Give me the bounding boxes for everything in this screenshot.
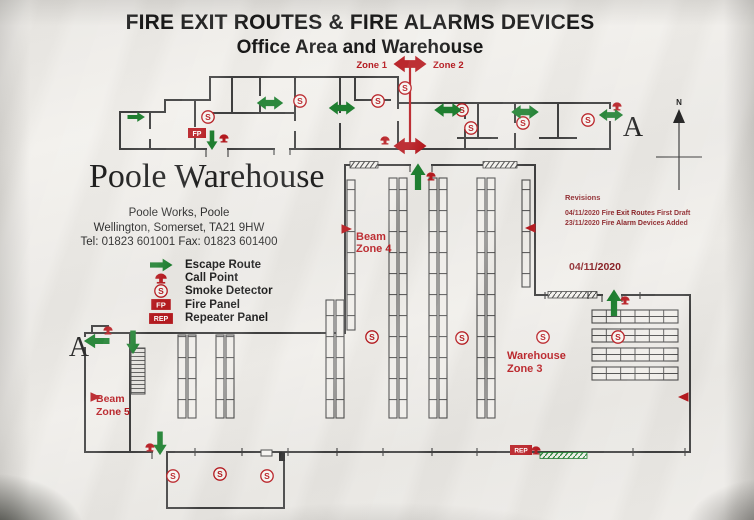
smoke-detector-icon (456, 332, 468, 344)
call-point-icon (612, 102, 621, 110)
loading-door (483, 162, 517, 169)
zone1-label: Zone 1 (356, 60, 387, 71)
smoke-detector-icon (167, 470, 179, 482)
revision-entry: 23/11/2020 Fire Alarm Devices Added (565, 219, 690, 229)
smoke-detector-icon (612, 331, 624, 343)
smoke-detector-icon (582, 114, 594, 126)
address-line: Poole Works, Poole (53, 206, 305, 221)
legend-row: Escape Route (144, 258, 273, 271)
stairs (131, 348, 145, 394)
address-line: Tel: 01823 601001 Fax: 01823 601400 (53, 235, 305, 250)
smoke-detector-icon (372, 95, 384, 107)
legend-row: Fire Panel (144, 298, 273, 311)
smoke-detector-icon (465, 122, 477, 134)
title-block: FIRE EXIT ROUTES & FIRE ALARMS DEVICES O… (60, 11, 660, 59)
page-title: FIRE EXIT ROUTES & FIRE ALARMS DEVICES (60, 11, 660, 35)
repeater-panel-icon (144, 312, 178, 325)
zone3-racks (592, 310, 678, 380)
revision-date: 04/11/2020 (569, 261, 621, 273)
warehouse-zone3-label: Zone 3 (507, 363, 542, 375)
fire-panel-icon (188, 128, 206, 138)
smoke-detector-icon (294, 95, 306, 107)
zone2-label: Zone 2 (433, 60, 464, 71)
page-subtitle: Office Area and Warehouse (60, 37, 660, 59)
legend-label: Repeater Panel (185, 312, 268, 324)
smoke-detector-icon (261, 470, 273, 482)
escape-route-arrow-icon (153, 432, 166, 456)
escape-route-arrow-icon (128, 112, 145, 122)
call-point-icon (426, 172, 435, 180)
escape-route-arrow-icon (144, 258, 178, 272)
warehouse-zone3-label: Warehouse (507, 350, 566, 362)
building-name: Poole Warehouse (89, 158, 325, 196)
legend-label: Smoke Detector (185, 285, 273, 297)
loading-door (350, 162, 378, 169)
legend-label: Fire Panel (185, 299, 240, 311)
north-arrow-icon (673, 109, 685, 123)
escape-route-arrow-icon (329, 101, 355, 114)
legend-row: Smoke Detector (144, 285, 273, 298)
beam-zone4-label: Zone 4 (356, 243, 392, 255)
smoke-detector-icon (517, 117, 529, 129)
call-point-icon (620, 296, 629, 304)
legend-row: Repeater Panel (144, 312, 273, 325)
section-marker-left: A (69, 332, 90, 363)
fire-panel-icon (144, 298, 178, 311)
escape-route-arrow-icon (599, 109, 623, 121)
building-address: Poole Works, Poole Wellington, Somerset,… (53, 206, 305, 250)
smoke-detector-icon (399, 82, 411, 94)
call-point-icon (380, 136, 389, 144)
office-area-walls (120, 77, 610, 157)
section-marker-right: A (623, 112, 644, 143)
address-line: Wellington, Somerset, TA21 9HW (53, 221, 305, 236)
smoke-detector-icon (144, 283, 178, 299)
smoke-detector-icon (202, 111, 214, 123)
call-point-icon (103, 326, 112, 334)
beam-detector-icon (678, 392, 689, 402)
roller-door (540, 453, 587, 459)
escape-route-arrow-icon (410, 163, 425, 190)
call-point-icon (531, 446, 540, 454)
smoke-detector-icon (214, 468, 226, 480)
north-label: N (676, 98, 682, 107)
loading-door (548, 292, 597, 299)
beam-zone5-label: Beam (96, 393, 125, 405)
revisions-block: Revisions 04/11/2020 Fire Exit Routes Fi… (565, 193, 690, 228)
beam-zone4-label: Beam (356, 231, 386, 243)
revisions-title: Revisions (565, 193, 690, 202)
escape-route-arrow-icon (206, 131, 217, 150)
revision-entry: 04/11/2020 Fire Exit Routes First Draft (565, 209, 690, 219)
north-compass: N (656, 98, 702, 190)
call-point-icon (145, 443, 154, 451)
call-point-icon (219, 134, 228, 142)
legend: Escape Route Call Point Smoke Detector F… (144, 258, 273, 325)
smoke-detector-icon (366, 331, 378, 343)
legend-label: Call Point (185, 272, 238, 284)
floor-plan: S FP REP (0, 0, 754, 520)
floor-plan-photo: S FP REP (0, 0, 754, 520)
beam-zone5-label: Zone 5 (96, 406, 130, 418)
smoke-detector-icon (537, 331, 549, 343)
legend-label: Escape Route (185, 259, 261, 271)
repeater-panel-icon (510, 445, 532, 455)
